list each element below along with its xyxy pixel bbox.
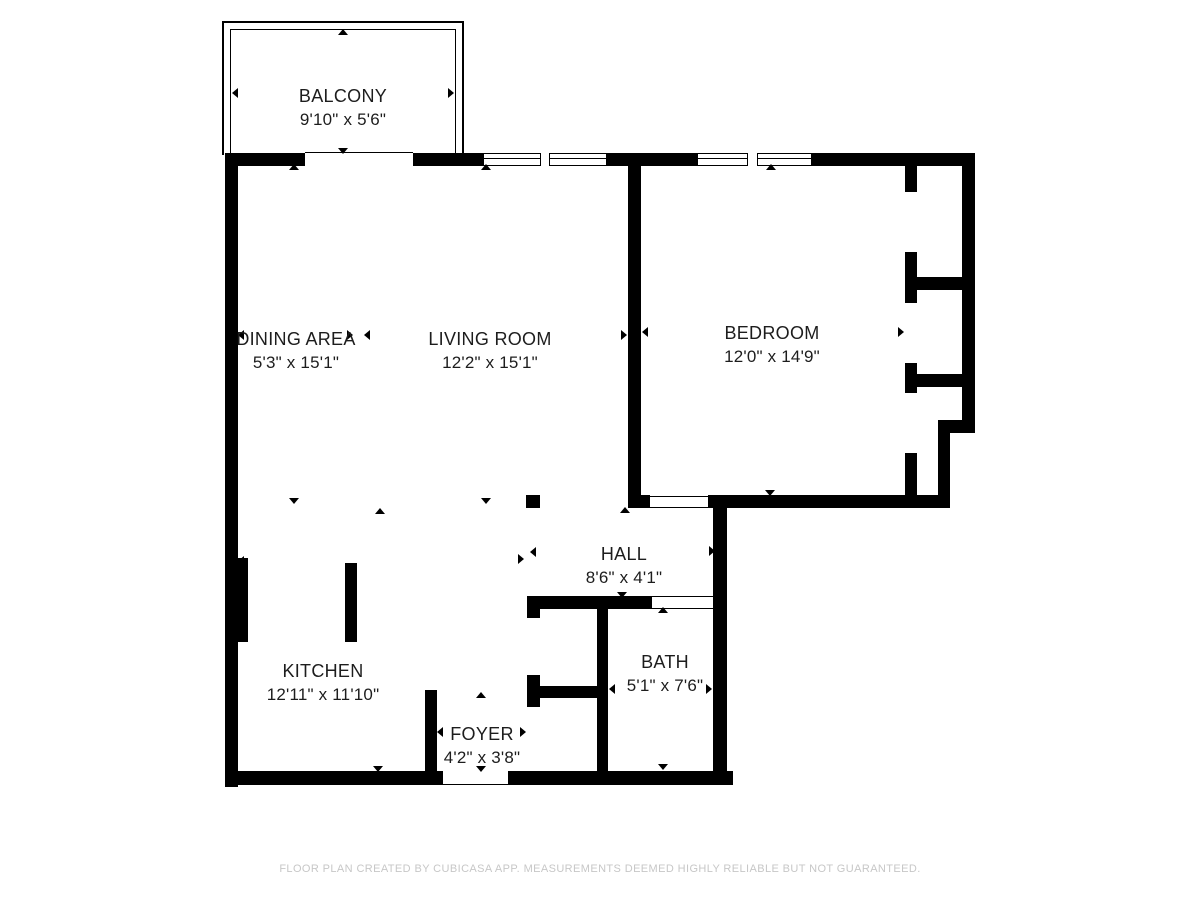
- dimension-arrow: [364, 330, 370, 340]
- wall: [527, 596, 540, 618]
- room-name: BATH: [641, 650, 689, 674]
- window: [549, 153, 607, 166]
- dimension-arrow: [481, 164, 491, 170]
- wall: [225, 771, 443, 785]
- dimension-arrow: [232, 88, 238, 98]
- room-label-hall: HALL 8'6" x 4'1": [586, 542, 663, 590]
- wall: [628, 495, 650, 508]
- wall-pillar: [238, 558, 248, 642]
- dimension-arrow: [481, 498, 491, 504]
- dimension-arrow: [620, 507, 630, 513]
- footer-disclaimer: FLOOR PLAN CREATED BY CUBICASA APP. MEAS…: [0, 863, 1200, 875]
- wall-closet: [905, 453, 917, 497]
- window: [483, 153, 541, 166]
- dimension-arrow: [621, 330, 627, 340]
- room-label-bedroom: BEDROOM 12'0" x 14'9": [724, 321, 820, 369]
- wall: [527, 686, 607, 698]
- wall-kitchen-stub: [345, 563, 357, 642]
- wall-closet: [910, 277, 965, 290]
- dimension-arrow: [765, 490, 775, 496]
- dimension-arrow: [609, 684, 615, 694]
- dimension-arrow: [518, 554, 524, 564]
- dimension-arrow: [289, 498, 299, 504]
- wall: [812, 153, 975, 166]
- dimension-arrow: [709, 546, 715, 556]
- room-label-kitchen: KITCHEN 12'11" x 11'10": [267, 659, 380, 707]
- room-dimensions: 12'0" x 14'9": [724, 345, 820, 369]
- dimension-arrow: [898, 327, 904, 337]
- bedroom-door-opening: [650, 496, 708, 508]
- dimension-arrow: [658, 607, 668, 613]
- room-name: DINING AREA: [236, 327, 355, 351]
- dimension-arrow: [520, 727, 526, 737]
- dimension-arrow: [766, 164, 776, 170]
- room-label-bath: BATH 5'1" x 7'6": [627, 650, 704, 698]
- dimension-arrow: [617, 592, 627, 598]
- floor-plan: BALCONY 9'10" x 5'6" DINING AREA 5'3" x …: [0, 0, 1200, 900]
- room-name: BALCONY: [299, 84, 387, 108]
- dimension-arrow: [289, 164, 299, 170]
- room-label-dining: DINING AREA 5'3" x 15'1": [236, 327, 355, 375]
- room-name: LIVING ROOM: [428, 327, 551, 351]
- room-label-living: LIVING ROOM 12'2" x 15'1": [428, 327, 551, 375]
- room-dimensions: 8'6" x 4'1": [586, 566, 663, 590]
- wall-bedroom-divider: [628, 166, 641, 508]
- dimension-arrow: [375, 508, 385, 514]
- room-label-balcony: BALCONY 9'10" x 5'6": [299, 84, 387, 132]
- wall-closet: [910, 374, 965, 387]
- wall: [508, 771, 733, 785]
- dimension-arrow: [706, 684, 712, 694]
- wall: [527, 596, 652, 609]
- room-dimensions: 5'3" x 15'1": [253, 351, 339, 375]
- room-label-foyer: FOYER 4'2" x 3'8": [444, 722, 521, 770]
- wall: [713, 495, 727, 785]
- room-dimensions: 12'11" x 11'10": [267, 683, 380, 707]
- dimension-arrow: [238, 556, 244, 566]
- dimension-arrow: [338, 29, 348, 35]
- room-name: BEDROOM: [724, 321, 819, 345]
- room-dimensions: 9'10" x 5'6": [300, 108, 386, 132]
- dimension-arrow: [530, 547, 536, 557]
- balcony-door-opening: [305, 152, 413, 166]
- entry-door-opening: [443, 771, 508, 785]
- wall: [225, 153, 238, 787]
- dimension-arrow: [437, 727, 443, 737]
- wall: [413, 153, 483, 166]
- wall: [425, 690, 437, 771]
- dimension-arrow: [476, 692, 486, 698]
- dimension-arrow: [658, 764, 668, 770]
- wall-pillar: [526, 495, 540, 508]
- wall: [607, 153, 697, 166]
- room-name: KITCHEN: [282, 659, 363, 683]
- room-dimensions: 12'2" x 15'1": [442, 351, 538, 375]
- dimension-arrow: [448, 88, 454, 98]
- wall-closet: [905, 166, 917, 192]
- wall: [962, 153, 975, 433]
- room-dimensions: 5'1" x 7'6": [627, 674, 704, 698]
- room-name: FOYER: [450, 722, 514, 746]
- room-dimensions: 4'2" x 3'8": [444, 746, 521, 770]
- dimension-arrow: [373, 766, 383, 772]
- dimension-arrow: [642, 327, 648, 337]
- dimension-arrow: [338, 148, 348, 154]
- room-name: HALL: [601, 542, 647, 566]
- window: [697, 153, 748, 166]
